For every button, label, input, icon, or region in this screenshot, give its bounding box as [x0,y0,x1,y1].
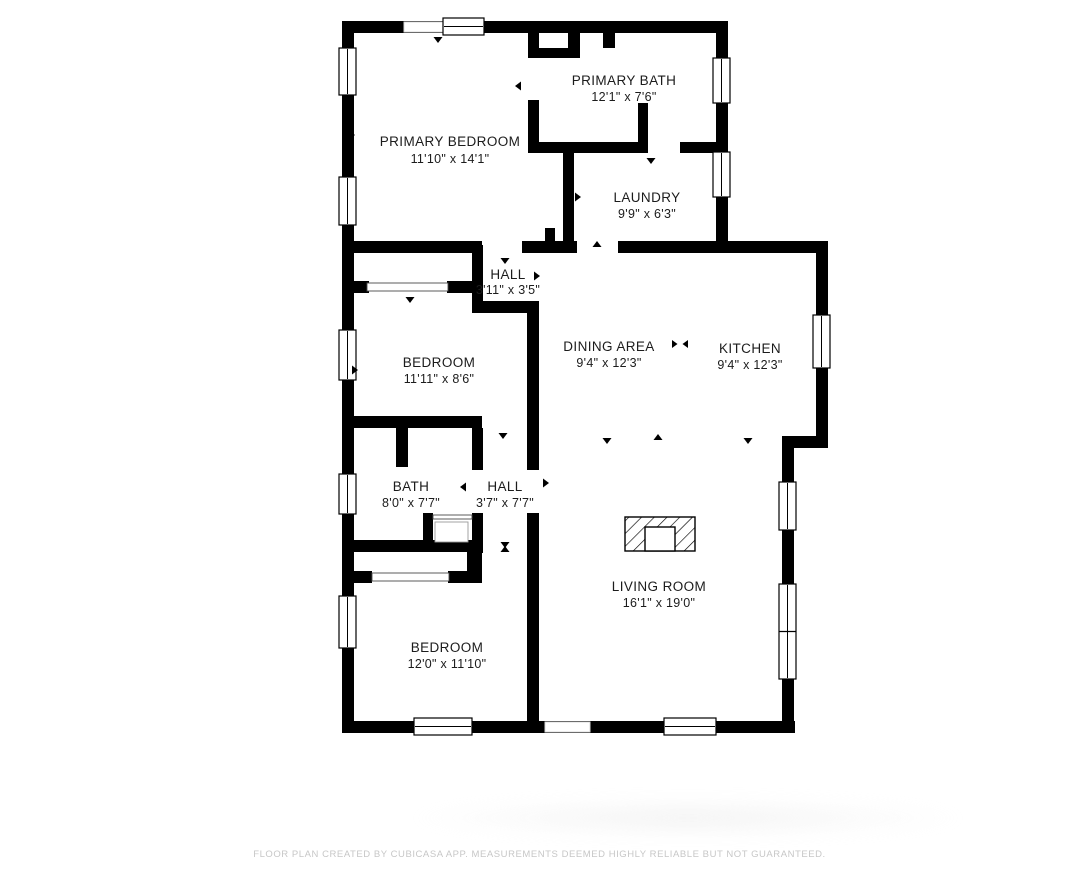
room-label-dining-area: DINING AREA9'4" x 12'3" [563,339,654,370]
door-swing-arrow [575,193,581,202]
window [813,315,830,368]
wall-segment [528,142,648,153]
room-name-living-room: LIVING ROOM [612,579,706,594]
door-swing-arrow [406,297,415,303]
room-dims-hall-upper: 3'11" x 3'5" [476,283,540,297]
room-label-living-room: LIVING ROOM16'1" x 19'0" [612,579,706,610]
room-dims-kitchen: 9'4" x 12'3" [717,358,782,372]
wall-segment [527,301,539,470]
room-label-laundry: LAUNDRY9'9" x 6'3" [613,190,680,221]
room-name-bedroom-3: BEDROOM [411,640,484,655]
window [713,152,730,197]
room-divider-icon [683,340,689,348]
room-label-bedroom-2: BEDROOM11'11" x 8'6" [403,355,476,386]
door-swing-arrow [744,438,753,444]
room-label-bedroom-3: BEDROOM12'0" x 11'10" [408,640,487,671]
window [664,718,716,735]
door-swing-arrow [534,272,540,281]
room-label-primary-bedroom: PRIMARY BEDROOM11'10" x 14'1" [380,134,521,166]
fireplace-symbol [625,517,695,551]
window [713,58,730,103]
room-name-laundry: LAUNDRY [613,190,680,205]
room-name-kitchen: KITCHEN [719,341,781,356]
wall-segment [472,428,483,470]
wall-segment [448,571,482,583]
room-label-primary-bath: PRIMARY BATH12'1" x 7'6" [572,73,677,104]
room-dims-laundry: 9'9" x 6'3" [618,207,676,221]
wall-opening [404,22,443,32]
wall-segment [342,241,482,253]
footer-disclaimer: FLOOR PLAN CREATED BY CUBICASA APP. MEAS… [0,849,1079,860]
wall-segment [342,571,372,583]
closet-slider-door [367,283,448,291]
fireplace-firebox [645,527,675,551]
wall-segment [638,103,648,153]
window [339,177,356,225]
window [779,482,796,530]
wall-segment [528,21,539,58]
door-swing-arrow [543,479,549,488]
wall-segment [423,513,433,543]
wall-segment [603,21,615,48]
closet-slider-door [372,573,449,581]
room-name-bath: BATH [393,479,430,494]
door-swing-arrow [647,158,656,164]
wall-segment [716,21,728,253]
wall-segment [342,416,482,428]
wall-segment [568,21,580,58]
door-swing-arrow [603,438,612,444]
room-label-hall-upper: HALL3'11" x 3'5" [476,267,540,297]
room-dims-bedroom-3: 12'0" x 11'10" [408,657,487,671]
door-swing-arrow [460,483,466,492]
floor-plan-page: PRIMARY BEDROOM11'10" x 14'1"PRIMARY BAT… [0,0,1079,880]
door-swing-arrow [515,82,521,91]
door-swing-arrow [501,258,510,264]
room-dims-bedroom-2: 11'11" x 8'6" [404,372,475,386]
door-swing-arrow [654,434,663,440]
wall-segment [618,241,828,253]
wall-segment [447,281,473,293]
door-swing-arrow [499,433,508,439]
wall-segment [342,281,369,293]
wall-segment [680,142,728,153]
room-dims-primary-bedroom: 11'10" x 14'1" [411,152,490,166]
door-swing-arrow [434,37,443,43]
room-label-hall-lower: HALL3'7" x 7'7" [476,479,534,510]
watermark-smudge [408,796,968,840]
room-name-dining-area: DINING AREA [563,339,654,354]
window [443,18,484,35]
room-dims-primary-bath: 12'1" x 7'6" [591,90,656,104]
bath-fixture [435,522,468,542]
window [339,596,356,648]
closet-slider-door [433,515,472,519]
room-dims-living-room: 16'1" x 19'0" [623,596,695,610]
room-label-kitchen: KITCHEN9'4" x 12'3" [717,341,782,372]
floor-plan-canvas: PRIMARY BEDROOM11'10" x 14'1"PRIMARY BAT… [0,0,1079,880]
symbols-layer [625,340,695,551]
room-label-bath: BATH8'0" x 7'7" [382,479,440,510]
fixtures-layer [435,522,468,542]
wall-segment [396,428,408,467]
window [414,718,472,735]
door-swing-arrow [501,546,510,552]
room-name-hall-lower: HALL [487,479,522,494]
room-name-primary-bedroom: PRIMARY BEDROOM [380,134,521,149]
wall-segment [545,228,555,245]
room-dims-hall-lower: 3'7" x 7'7" [476,496,534,510]
room-name-bedroom-2: BEDROOM [403,355,476,370]
room-name-primary-bath: PRIMARY BATH [572,73,677,88]
room-dims-bath: 8'0" x 7'7" [382,496,440,510]
wall-segment [563,153,574,245]
door-swing-arrow [593,241,602,247]
room-dims-dining-area: 9'4" x 12'3" [576,356,641,370]
window [779,584,796,679]
window [339,48,356,95]
wall-segment [527,513,539,733]
wall-opening [545,722,590,732]
room-name-hall-upper: HALL [490,267,525,282]
window [339,474,356,514]
room-divider-icon [672,340,678,348]
